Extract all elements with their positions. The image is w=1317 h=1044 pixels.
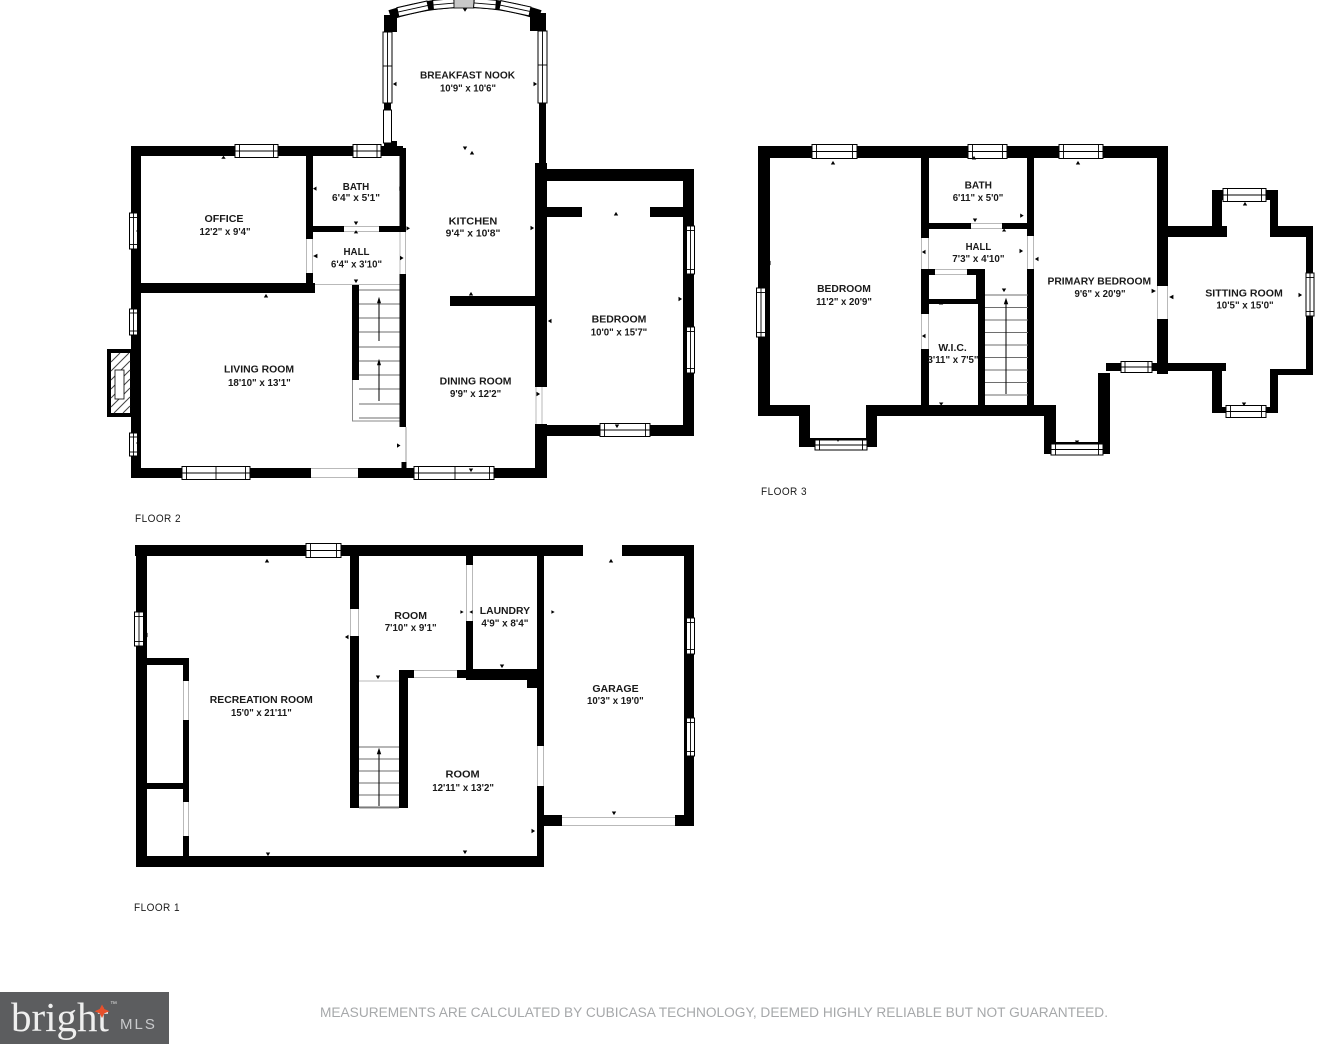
- svg-text:12'11" x 13'2": 12'11" x 13'2": [432, 783, 494, 794]
- svg-text:3'11" x 7'5": 3'11" x 7'5": [928, 355, 979, 366]
- svg-text:12'2" x 9'4": 12'2" x 9'4": [200, 227, 251, 238]
- svg-text:MEASUREMENTS ARE CALCULATED BY: MEASUREMENTS ARE CALCULATED BY CUBICASA …: [320, 1005, 1108, 1020]
- svg-text:HALL: HALL: [966, 242, 992, 253]
- svg-text:6'11" x 5'0": 6'11" x 5'0": [953, 193, 1004, 204]
- svg-text:11'2" x 20'9": 11'2" x 20'9": [816, 297, 872, 308]
- svg-text:RECREATION ROOM: RECREATION ROOM: [210, 695, 313, 706]
- svg-text:DINING ROOM: DINING ROOM: [440, 376, 512, 387]
- svg-text:BREAKFAST NOOK: BREAKFAST NOOK: [420, 71, 515, 82]
- svg-text:BATH: BATH: [965, 181, 992, 192]
- svg-text:9'4" x 10'8": 9'4" x 10'8": [446, 229, 501, 240]
- svg-text:7'3" x 4'10": 7'3" x 4'10": [952, 254, 1004, 265]
- svg-text:GARAGE: GARAGE: [592, 684, 638, 695]
- svg-text:LIVING ROOM: LIVING ROOM: [224, 364, 294, 375]
- svg-text:9'6" x 20'9": 9'6" x 20'9": [1075, 289, 1126, 300]
- svg-text:OFFICE: OFFICE: [205, 214, 244, 225]
- svg-text:6'4" x 3'10": 6'4" x 3'10": [331, 260, 382, 271]
- svg-text:10'3" x 19'0": 10'3" x 19'0": [587, 696, 644, 707]
- svg-text:4'9" x 8'4": 4'9" x 8'4": [481, 618, 528, 629]
- svg-text:ROOM: ROOM: [446, 769, 480, 780]
- svg-text:BATH: BATH: [343, 182, 370, 193]
- svg-text:SITTING ROOM: SITTING ROOM: [1205, 288, 1283, 299]
- svg-text:™: ™: [110, 1001, 117, 1008]
- svg-text:HALL: HALL: [344, 247, 371, 258]
- svg-text:W.I.C.: W.I.C.: [938, 343, 967, 354]
- svg-text:7'10" x 9'1": 7'10" x 9'1": [385, 623, 437, 634]
- svg-text:BEDROOM: BEDROOM: [817, 284, 871, 295]
- svg-text:9'9" x 12'2": 9'9" x 12'2": [450, 389, 501, 400]
- svg-text:18'10" x 13'1": 18'10" x 13'1": [228, 378, 291, 389]
- svg-text:15'0" x 21'11": 15'0" x 21'11": [231, 708, 292, 719]
- svg-text:bright: bright: [11, 994, 110, 1040]
- svg-text:MLS: MLS: [120, 1016, 157, 1033]
- svg-text:FLOOR 2: FLOOR 2: [135, 513, 181, 525]
- svg-text:BEDROOM: BEDROOM: [592, 315, 647, 326]
- svg-text:10'5" x 15'0": 10'5" x 15'0": [1216, 301, 1273, 312]
- svg-text:KITCHEN: KITCHEN: [449, 217, 498, 228]
- svg-text:6'4" x 5'1": 6'4" x 5'1": [332, 193, 380, 204]
- svg-text:LAUNDRY: LAUNDRY: [480, 606, 530, 617]
- svg-text:ROOM: ROOM: [394, 611, 427, 622]
- svg-text:FLOOR 1: FLOOR 1: [134, 902, 180, 914]
- svg-text:PRIMARY BEDROOM: PRIMARY BEDROOM: [1048, 277, 1152, 288]
- svg-text:10'0" x 15'7": 10'0" x 15'7": [591, 327, 648, 338]
- svg-text:10'9" x 10'6": 10'9" x 10'6": [440, 84, 496, 95]
- svg-text:FLOOR 3: FLOOR 3: [761, 486, 807, 498]
